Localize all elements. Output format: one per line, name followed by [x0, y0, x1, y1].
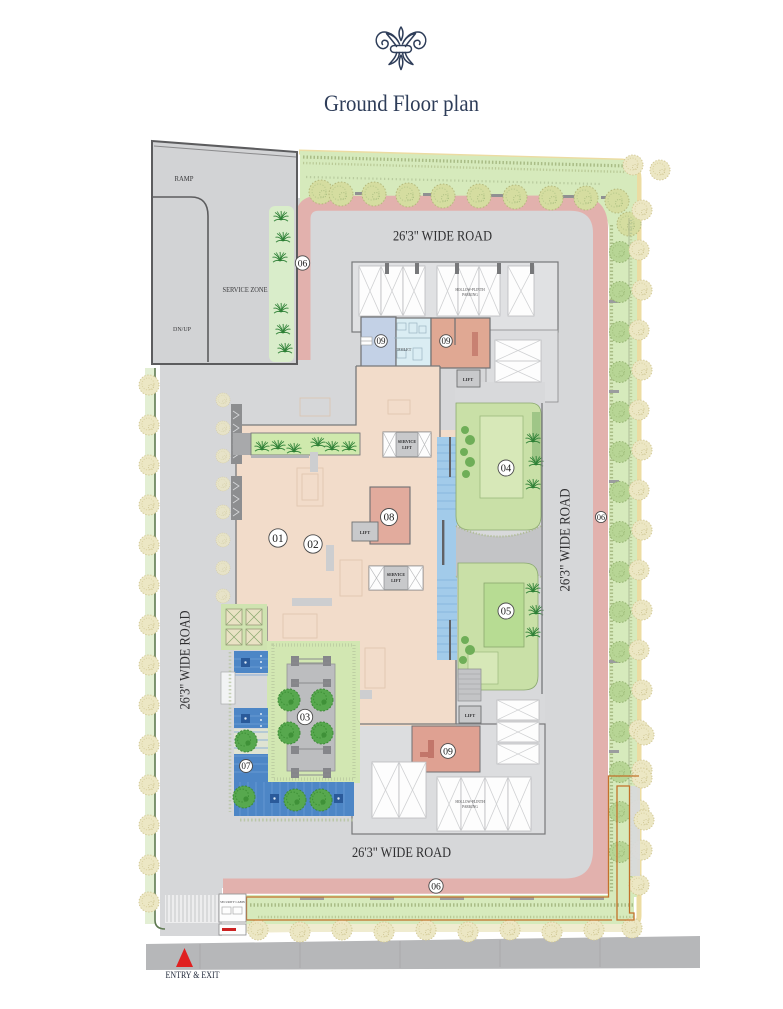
svg-text:Ground Floor plan: Ground Floor plan — [324, 91, 479, 116]
svg-text:PARKING: PARKING — [462, 805, 478, 809]
svg-text:SECURITY CABIN: SECURITY CABIN — [220, 900, 245, 904]
svg-text:RAMP: RAMP — [175, 176, 194, 183]
svg-text:HOLLOW-PLINTH: HOLLOW-PLINTH — [455, 800, 485, 804]
svg-text:07: 07 — [241, 761, 251, 771]
svg-text:05: 05 — [501, 607, 511, 618]
svg-text:DN/UP: DN/UP — [173, 326, 192, 333]
svg-text:LIFT: LIFT — [402, 445, 412, 450]
svg-text:TOILET: TOILET — [397, 347, 412, 352]
svg-text:26'3" WIDE ROAD: 26'3" WIDE ROAD — [178, 610, 194, 709]
svg-text:09: 09 — [442, 336, 452, 346]
svg-text:03: 03 — [300, 712, 310, 723]
svg-text:02: 02 — [307, 539, 319, 551]
svg-text:26'3" WIDE ROAD: 26'3" WIDE ROAD — [393, 229, 492, 245]
svg-text:LIFT: LIFT — [465, 713, 475, 718]
svg-text:06: 06 — [431, 881, 441, 892]
svg-text:09: 09 — [443, 746, 453, 757]
svg-text:26'3" WIDE ROAD: 26'3" WIDE ROAD — [558, 488, 574, 591]
svg-text:01: 01 — [272, 533, 284, 545]
svg-text:LIFT: LIFT — [463, 377, 473, 382]
svg-text:SERVICE ZONE: SERVICE ZONE — [223, 286, 269, 294]
svg-text:SERVICE: SERVICE — [387, 572, 406, 577]
svg-text:04: 04 — [501, 464, 512, 475]
svg-text:LIFT: LIFT — [391, 578, 401, 583]
svg-text:09: 09 — [377, 336, 387, 346]
svg-text:ENTRY & EXIT: ENTRY & EXIT — [166, 971, 220, 981]
svg-text:06: 06 — [298, 258, 308, 269]
svg-text:26'3" WIDE ROAD: 26'3" WIDE ROAD — [352, 845, 451, 861]
svg-text:HOLLOW-PLINTH: HOLLOW-PLINTH — [455, 288, 485, 292]
svg-text:06: 06 — [597, 513, 605, 522]
svg-text:08: 08 — [384, 512, 395, 524]
svg-text:SERVICE: SERVICE — [398, 439, 417, 444]
svg-text:LIFT: LIFT — [360, 530, 370, 535]
svg-text:PARKING: PARKING — [462, 293, 478, 297]
